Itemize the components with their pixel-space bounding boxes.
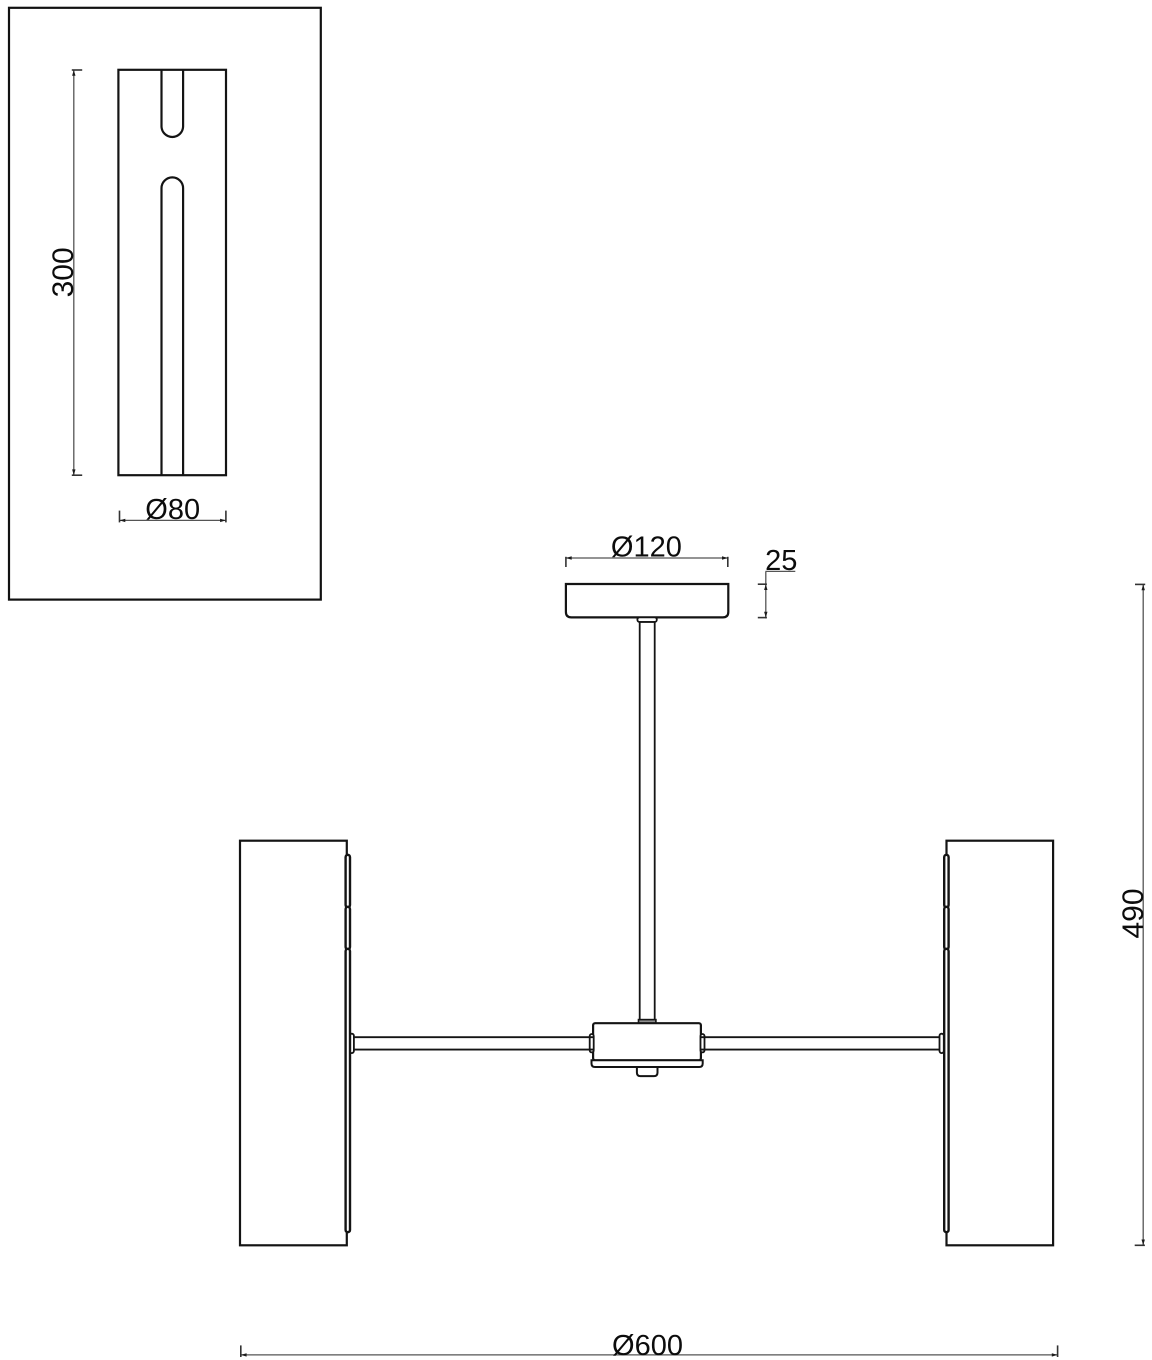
svg-text:Ø120: Ø120 — [611, 532, 682, 564]
svg-text:300: 300 — [47, 247, 80, 297]
svg-text:25: 25 — [765, 545, 797, 577]
svg-text:490: 490 — [1117, 888, 1150, 938]
svg-text:Ø600: Ø600 — [612, 1330, 683, 1360]
svg-text:Ø80: Ø80 — [145, 494, 200, 526]
